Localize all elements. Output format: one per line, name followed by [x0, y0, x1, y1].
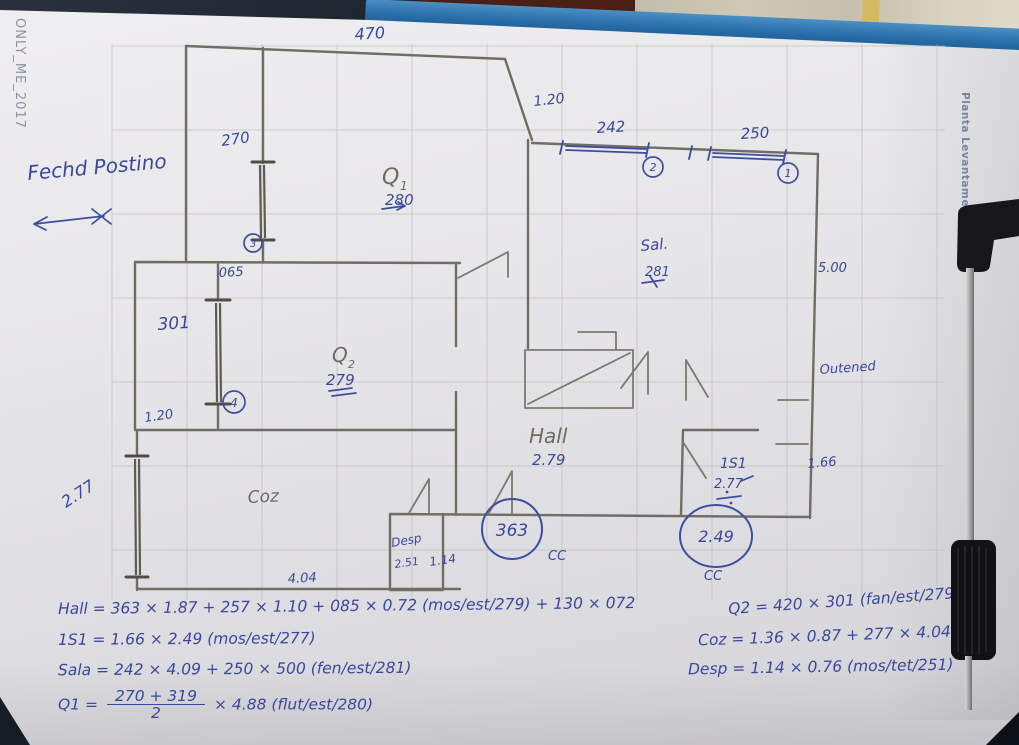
photo-scene: ONLY_ME_2017 Planta Levantamento 3 4 2 1…: [0, 0, 1019, 745]
clip-rod: [966, 268, 974, 544]
clip-rod-lower: [965, 656, 972, 710]
clipboard-clip: [0, 0, 1019, 745]
clip-handle: [957, 199, 1019, 272]
